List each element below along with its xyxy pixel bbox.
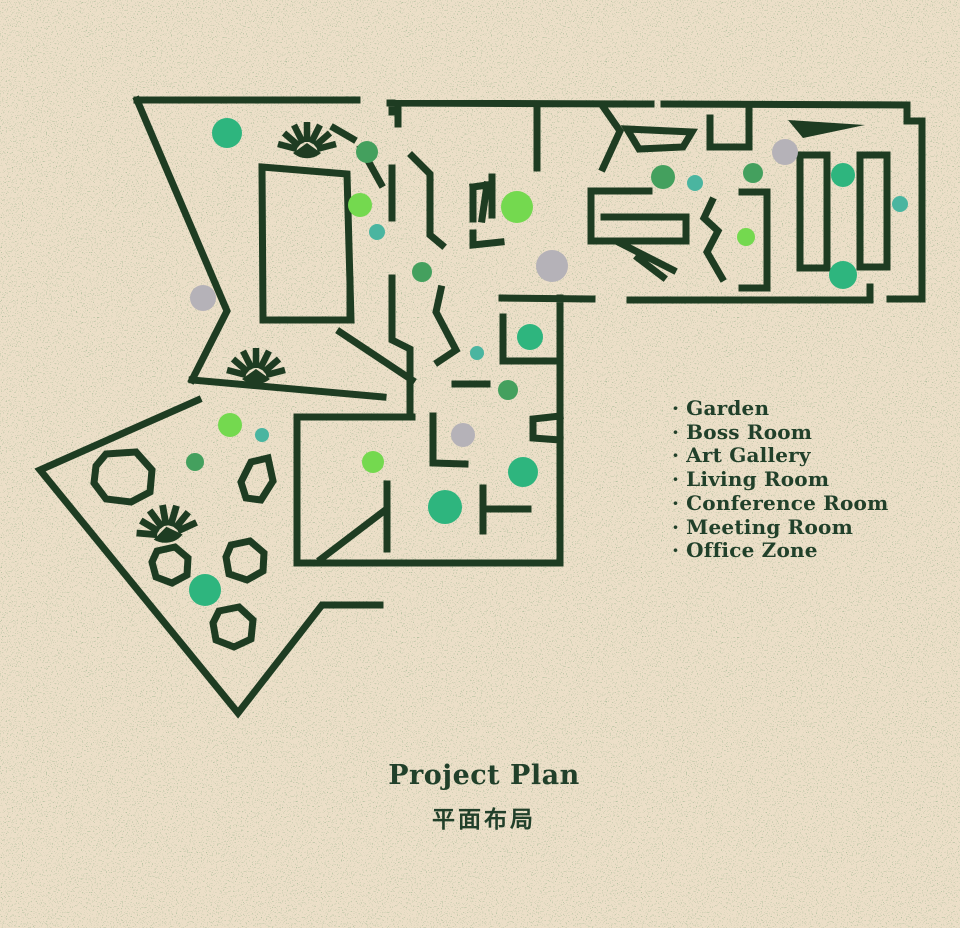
- legend-item: · Boss Room: [672, 421, 888, 445]
- legend-label: Art Gallery: [686, 444, 811, 468]
- legend-bullet: ·: [672, 444, 679, 468]
- plant-marker: [356, 141, 378, 163]
- legend-bullet: ·: [672, 421, 679, 445]
- legend-item: · Art Gallery: [672, 444, 888, 468]
- legend-item: · Meeting Room: [672, 516, 888, 540]
- legend-item: · Garden: [672, 397, 888, 421]
- legend-label: Meeting Room: [686, 516, 853, 540]
- plant-marker: [428, 490, 462, 524]
- legend-bullet: ·: [672, 539, 679, 563]
- legend-label: Conference Room: [686, 492, 888, 516]
- plant-marker: [687, 175, 703, 191]
- plant-marker: [831, 163, 855, 187]
- plant-marker: [412, 262, 432, 282]
- plant-marker: [348, 193, 372, 217]
- plan-subtitle: 平面布局: [388, 800, 579, 834]
- plant-marker: [369, 224, 385, 240]
- plant-marker: [517, 324, 543, 350]
- plant-marker: [508, 457, 538, 487]
- plant-marker: [892, 196, 908, 212]
- plant-marker: [362, 451, 384, 473]
- plant-marker: [451, 423, 475, 447]
- legend-label: Office Zone: [686, 539, 818, 563]
- plan-title: Project Plan: [388, 760, 579, 791]
- legend-bullet: ·: [672, 516, 679, 540]
- plant-marker: [737, 228, 755, 246]
- legend-bullet: ·: [672, 492, 679, 516]
- plant-marker: [470, 346, 484, 360]
- plant-marker: [255, 428, 269, 442]
- plant-marker: [186, 453, 204, 471]
- plant-marker: [212, 118, 242, 148]
- plant-marker: [190, 285, 216, 311]
- legend-label: Boss Room: [686, 421, 812, 445]
- legend-bullet: ·: [672, 397, 679, 421]
- legend-bullet: ·: [672, 468, 679, 492]
- plant-marker: [772, 139, 798, 165]
- legend-item: · Living Room: [672, 468, 888, 492]
- plant-marker: [189, 574, 221, 606]
- plant-marker: [536, 250, 568, 282]
- plant-marker: [743, 163, 763, 183]
- title-block: Project Plan 平面布局: [388, 760, 579, 834]
- plant-marker: [501, 191, 533, 223]
- plant-marker: [218, 413, 242, 437]
- legend-label: Living Room: [686, 468, 829, 492]
- floor-plan-page: · Garden · Boss Room · Art Gallery · Liv…: [0, 0, 960, 928]
- legend-item: · Conference Room: [672, 492, 888, 516]
- plant-marker: [498, 380, 518, 400]
- legend: · Garden · Boss Room · Art Gallery · Liv…: [672, 397, 888, 563]
- plant-marker: [829, 261, 857, 289]
- legend-label: Garden: [686, 397, 769, 421]
- plant-marker: [651, 165, 675, 189]
- legend-item: · Office Zone: [672, 539, 888, 563]
